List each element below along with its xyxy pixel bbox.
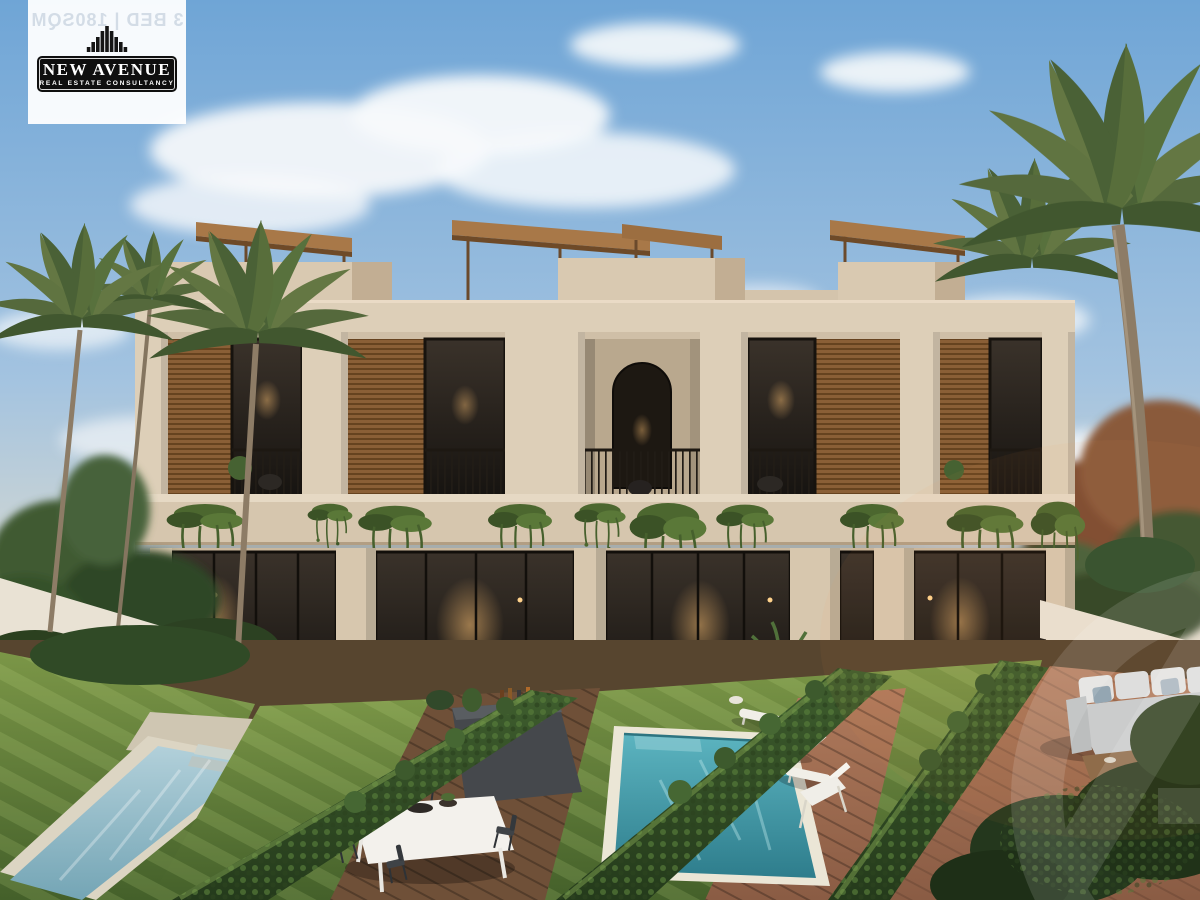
agency-name: NEW AVENUE [43, 61, 171, 78]
scene-artwork [0, 0, 1200, 900]
agency-logo: NEW AVENUE REAL ESTATE CONSULTANCY [37, 56, 177, 92]
skyline-building-icon [85, 24, 129, 54]
brand-overlay: 3 BED | 180SQM NEW AVENUE REAL ESTATE CO… [28, 0, 186, 124]
agency-tagline: REAL ESTATE CONSULTANCY [39, 80, 174, 88]
upper-floor [135, 332, 1075, 500]
property-render: 3 BED | 180SQM NEW AVENUE REAL ESTATE CO… [0, 0, 1200, 900]
agency-logo-frame: NEW AVENUE REAL ESTATE CONSULTANCY [39, 58, 175, 90]
